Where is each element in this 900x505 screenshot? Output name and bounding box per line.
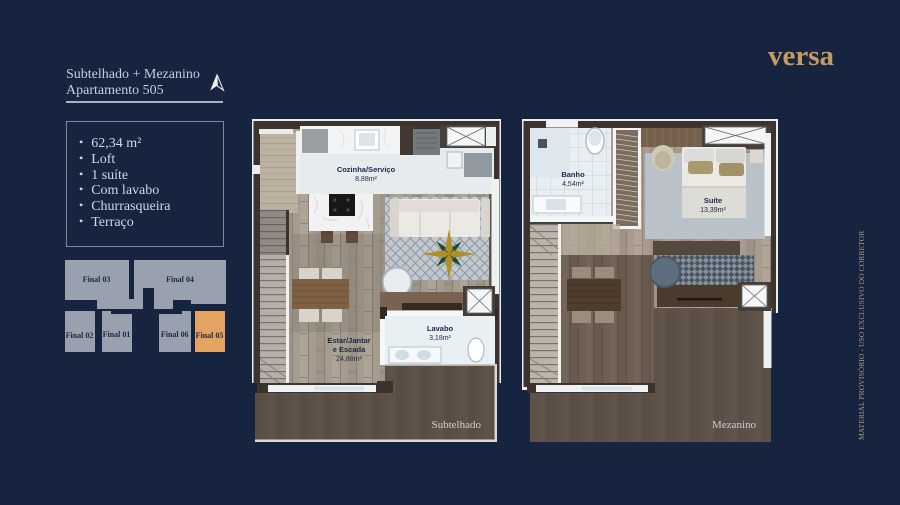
svg-text:24,88m²: 24,88m² bbox=[336, 356, 362, 363]
svg-text:13,39m²: 13,39m² bbox=[700, 207, 726, 214]
svg-text:Banho: Banho bbox=[561, 170, 585, 179]
svg-text:Lavabo: Lavabo bbox=[427, 324, 454, 333]
svg-text:Cozinha/Serviço: Cozinha/Serviço bbox=[337, 165, 396, 174]
svg-text:e Escada: e Escada bbox=[333, 345, 366, 354]
svg-text:Estar/Jantar: Estar/Jantar bbox=[327, 336, 370, 345]
svg-text:8,88m²: 8,88m² bbox=[355, 176, 377, 183]
svg-text:Mezanino: Mezanino bbox=[712, 419, 756, 431]
svg-text:4,54m²: 4,54m² bbox=[562, 181, 584, 188]
svg-text:3,18m²: 3,18m² bbox=[429, 335, 451, 342]
svg-text:Suíte: Suíte bbox=[704, 196, 722, 205]
svg-text:Subtelhado: Subtelhado bbox=[432, 419, 482, 431]
